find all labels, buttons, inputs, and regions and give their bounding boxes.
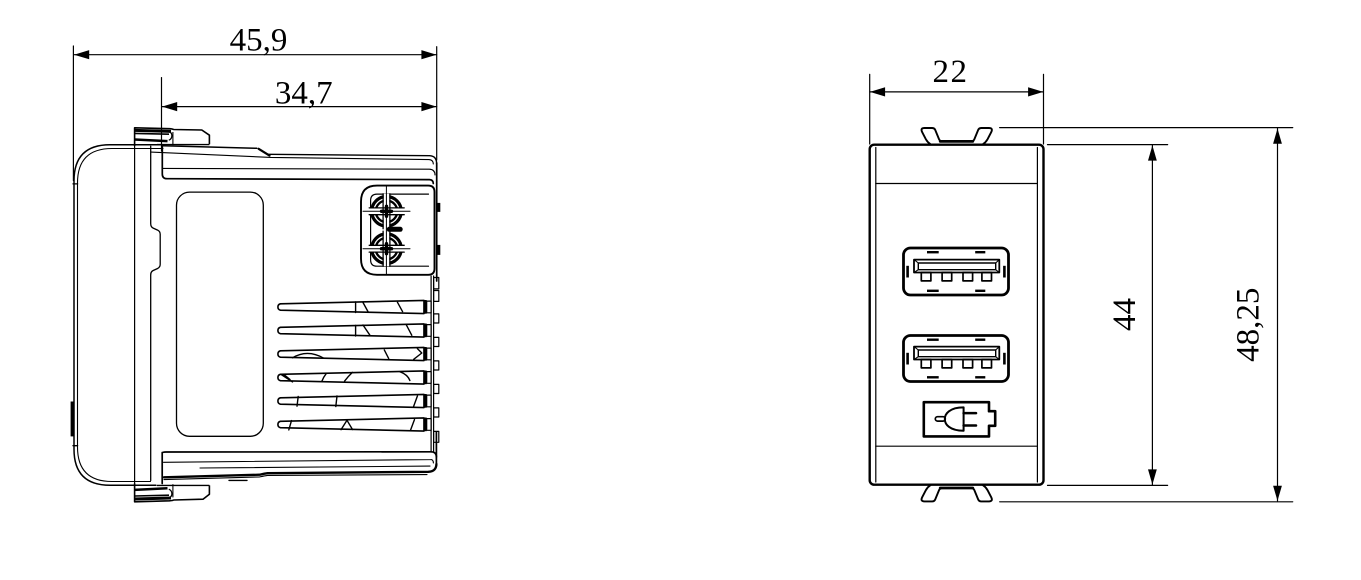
svg-text:44: 44: [1107, 298, 1143, 331]
svg-text:45,9: 45,9: [230, 23, 288, 59]
svg-text:22: 22: [933, 54, 969, 90]
svg-text:48,25: 48,25: [1231, 288, 1267, 362]
svg-text:34,7: 34,7: [275, 75, 333, 111]
